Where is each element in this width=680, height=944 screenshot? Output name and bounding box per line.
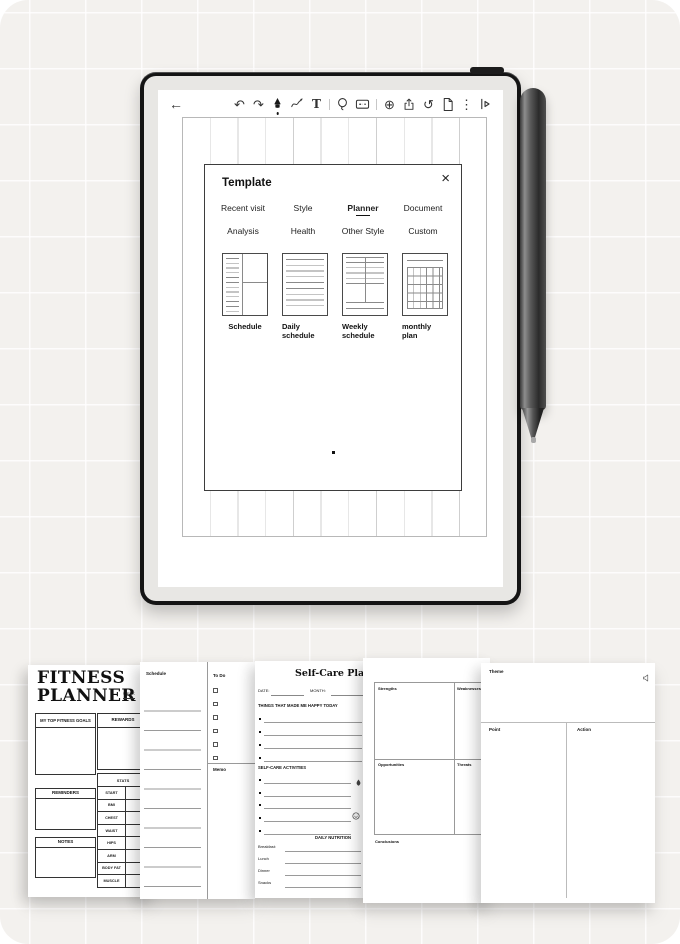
back-icon[interactable]: ← [169, 97, 183, 111]
memo-header: Memo [213, 768, 226, 773]
textbox-icon[interactable] [355, 97, 370, 111]
selfcare-title: Self-Care Planner [295, 668, 365, 679]
activity-line [264, 776, 351, 784]
todo-checkbox [213, 742, 218, 747]
weekly-schedule-thumbnail [342, 253, 388, 316]
lasso-icon[interactable] [336, 97, 349, 112]
share-icon[interactable] [402, 97, 416, 112]
point-action-divider [566, 722, 567, 898]
happy-line [264, 754, 362, 762]
template-label: Daily schedule [282, 323, 328, 340]
speaker-icon [642, 669, 650, 687]
toolbar-separator [376, 99, 377, 110]
point-label: Point [489, 728, 500, 733]
nutrition-header: DAILY NUTRITION [315, 836, 351, 840]
tab-other-style[interactable]: Other Style [333, 226, 393, 236]
tab-custom[interactable]: Custom [393, 226, 453, 236]
template-tabs: Recent visit Style Planner Document Anal… [213, 203, 453, 236]
reminders-box [35, 798, 96, 830]
weaknesses-label: Weaknesses [457, 687, 481, 691]
tab-recent-visit[interactable]: Recent visit [213, 203, 273, 216]
template-item-schedule[interactable]: Schedule [222, 253, 268, 340]
template-label: Schedule [222, 323, 268, 332]
row-label: START [98, 787, 126, 799]
activity-line [264, 789, 351, 797]
activity-line [264, 827, 351, 835]
tab-health[interactable]: Health [273, 226, 333, 236]
page-indicator-dot [332, 451, 335, 454]
meal-line [285, 875, 361, 876]
happy-line [264, 715, 362, 723]
preview-theme-page: Theme Point Action [481, 663, 655, 903]
expand-panel-icon[interactable] [479, 97, 492, 111]
meal-line [285, 863, 361, 864]
happy-header: THINGS THAT MADE ME HAPPY TODAY [258, 704, 338, 708]
tab-style[interactable]: Style [273, 203, 333, 216]
pen-icon[interactable] [271, 97, 284, 111]
meal-label: Dinner [258, 869, 270, 873]
fitness-goals-header: MY TOP FITNESS GOALS [35, 713, 96, 728]
row-label: CHEST [98, 812, 126, 824]
template-label: monthly plan [402, 323, 448, 340]
close-icon[interactable]: × [441, 171, 450, 186]
tab-planner[interactable]: Planner [333, 203, 393, 216]
todo-header: To Do [213, 674, 225, 679]
memo-divider [207, 763, 255, 764]
template-item-daily-schedule[interactable]: Daily schedule [282, 253, 328, 340]
handwriting-pen-icon[interactable] [290, 97, 304, 111]
template-label: Weekly schedule [342, 323, 388, 340]
tab-document[interactable]: Document [393, 203, 453, 216]
screenshot-card: ← ↶ ↷ T [0, 0, 680, 944]
todo-checkbox [213, 729, 218, 734]
date-line [271, 695, 304, 696]
happy-line [264, 728, 362, 736]
week-label: WEEK [123, 692, 135, 699]
template-list: Schedule Daily schedule We [222, 253, 448, 340]
activities-header: SELF-CARE ACTIVITIES [258, 766, 306, 770]
power-button[interactable] [470, 67, 504, 74]
row-label: ARM [98, 850, 126, 862]
more-icon[interactable]: ⋮ [460, 98, 473, 111]
meal-label: Snacks [258, 881, 271, 885]
page-icon[interactable] [441, 97, 454, 112]
threats-label: Threats [457, 763, 471, 767]
happy-line [264, 741, 362, 749]
row-label: HIPS [98, 837, 126, 849]
fitness-goals-box [35, 727, 96, 775]
row-label: WAIST [98, 825, 126, 837]
schedule-thumbnail [222, 253, 268, 316]
theme-divider [481, 722, 655, 723]
theme-label: Theme [489, 670, 504, 675]
month-label: MONTH: [310, 689, 326, 693]
monthly-plan-thumbnail [402, 253, 448, 316]
template-item-monthly-plan[interactable]: monthly plan [402, 253, 448, 340]
action-label: Action [577, 728, 591, 733]
toolbar-separator [329, 99, 330, 110]
toolbar-group: ↶ ↷ T [233, 97, 492, 112]
eink-tablet: ← ↶ ↷ T [140, 72, 521, 605]
undo-icon[interactable]: ↶ [233, 98, 246, 111]
todo-checkbox [213, 702, 218, 707]
meal-line [285, 851, 361, 852]
fitness-title: FITNESS PLANNER [37, 670, 136, 705]
preview-swot-analysis: Strengths Weaknesses Opportunities Threa… [363, 658, 490, 903]
preview-fitness-planner: FITNESS PLANNER WEEK MY TOP FITNESS GOAL… [28, 665, 152, 897]
schedule-header: Schedule [146, 672, 166, 677]
stylus-nib [531, 437, 536, 443]
history-icon[interactable]: ↺ [422, 98, 435, 111]
meal-line [285, 887, 361, 888]
row-label: MUSCLE [98, 875, 126, 887]
device-screen: ← ↶ ↷ T [158, 90, 503, 587]
row-label: BODY FAT [98, 863, 126, 875]
stylus-body [520, 88, 546, 410]
column-divider [207, 662, 208, 899]
swot-grid [374, 682, 490, 835]
zoom-in-icon[interactable]: ⊕ [383, 98, 396, 111]
strengths-label: Strengths [378, 687, 397, 691]
dialog-title: Template [222, 177, 272, 189]
tab-analysis[interactable]: Analysis [213, 226, 273, 236]
preview-schedule-todo: Schedule To Do Memo [140, 662, 255, 899]
droplet-icon [355, 774, 362, 792]
stylus-pen [520, 88, 546, 444]
month-line [331, 695, 363, 696]
conclusions-label: Conclusions [375, 840, 399, 844]
schedule-lines [144, 692, 201, 895]
todo-checkbox [213, 756, 218, 761]
meal-label: Lunch [258, 857, 269, 861]
note-toolbar: ← ↶ ↷ T [158, 90, 503, 118]
opportunities-label: Opportunities [378, 763, 404, 767]
notes-box [35, 847, 96, 878]
smiley-icon [352, 807, 360, 825]
activity-line [264, 814, 351, 822]
meal-label: Breakfast: [258, 845, 276, 849]
stylus-tip [522, 408, 544, 438]
todo-checkbox [213, 715, 218, 720]
template-item-weekly-schedule[interactable]: Weekly schedule [342, 253, 388, 340]
activity-line [264, 801, 351, 809]
text-tool-icon[interactable]: T [310, 98, 323, 110]
template-dialog: Template × Recent visit Style Planner Do… [204, 164, 462, 491]
device-bezel: ← ↶ ↷ T [144, 76, 517, 601]
preview-selfcare-planner: Self-Care Planner DATE: MONTH: THINGS TH… [255, 661, 365, 898]
todo-checkbox [213, 688, 218, 693]
date-label: DATE: [258, 689, 269, 693]
daily-schedule-thumbnail [282, 253, 328, 316]
redo-icon[interactable]: ↷ [252, 98, 265, 111]
row-label: BMI [98, 800, 126, 812]
